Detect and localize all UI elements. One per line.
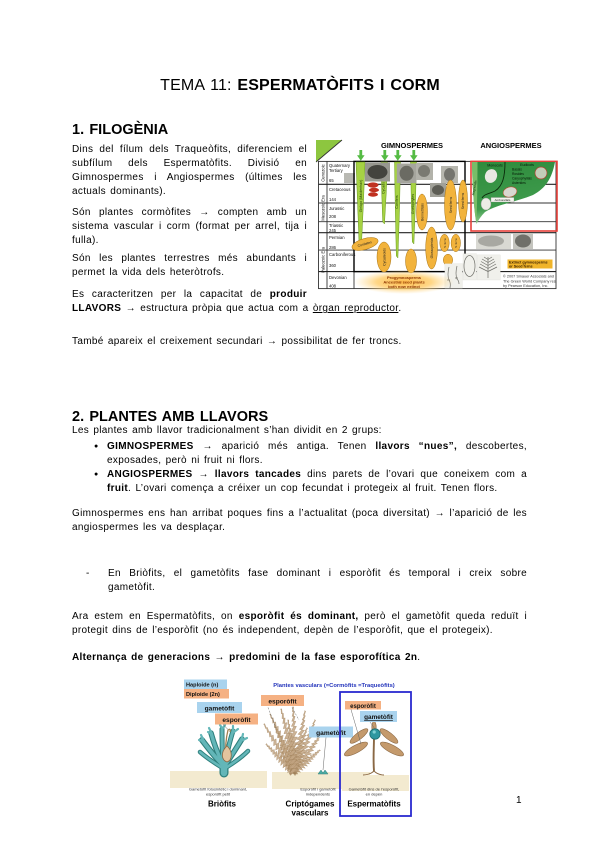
svg-text:Asterides: Asterides	[512, 181, 526, 185]
svg-text:Bennettitals: Bennettitals	[420, 203, 424, 221]
svg-text:esporòfit: esporòfit	[350, 704, 376, 710]
svg-text:Glossopterids: Glossopterids	[430, 237, 434, 258]
svg-text:Cycadeoids: Cycadeoids	[382, 248, 386, 266]
svg-text:Ginkgo (Maidenhair): Ginkgo (Maidenhair)	[359, 180, 363, 213]
svg-text:144: 144	[329, 197, 337, 202]
svg-text:The Green World Company res.: The Green World Company res.	[503, 279, 557, 283]
svg-text:gametòfit: gametòfit	[316, 730, 346, 737]
svg-text:esporòfit: esporòfit	[268, 699, 297, 706]
svg-text:Cycads: Cycads	[382, 182, 386, 194]
svg-text:vasculars: vasculars	[292, 809, 329, 818]
svg-text:by Pearson Education, Inc.: by Pearson Education, Inc.	[503, 284, 548, 288]
svg-text:© 2007 Sinauer Associats and: © 2007 Sinauer Associats and	[503, 275, 554, 279]
svg-text:gametòfit: gametòfit	[364, 714, 394, 721]
svg-text:208: 208	[329, 214, 337, 219]
svg-text:Rosides: Rosides	[512, 172, 524, 176]
svg-text:Devonian: Devonian	[329, 275, 347, 280]
svg-text:Permian: Permian	[329, 235, 345, 240]
svg-text:Monocots: Monocots	[487, 164, 503, 168]
svg-text:Paleozoic Era: Paleozoic Era	[321, 246, 326, 273]
svg-text:245: 245	[329, 228, 337, 233]
svg-text:360: 360	[329, 263, 337, 268]
svg-text:S. ferns: S. ferns	[454, 238, 458, 248]
svg-text:Seed ferns: Seed ferns	[449, 196, 453, 213]
svg-text:65: 65	[329, 178, 334, 183]
svg-text:Mesozoic Era: Mesozoic Era	[321, 195, 326, 221]
svg-text:Espermatòfits: Espermatòfits	[347, 800, 401, 809]
svg-text:Amborellals: Amborellals	[495, 198, 511, 202]
svg-text:esporòfit petit: esporòfit petit	[206, 792, 231, 797]
svg-text:independents: independents	[306, 792, 330, 797]
svg-text:GIMNOSPERMES: GIMNOSPERMES	[381, 141, 443, 150]
svg-text:Cretaceous: Cretaceous	[329, 187, 350, 192]
svg-text:408: 408	[329, 284, 337, 289]
svg-text:Caryophyllals: Caryophyllals	[512, 177, 532, 181]
svg-text:ANGIOSPERMES: ANGIOSPERMES	[480, 141, 541, 150]
svg-text:Gnetophytes: Gnetophytes	[411, 194, 415, 215]
svg-text:S. ferns: S. ferns	[443, 238, 447, 248]
svg-text:286: 286	[329, 245, 337, 250]
svg-text:Criptógames: Criptógames	[286, 800, 335, 809]
svg-text:Haploide (n): Haploide (n)	[186, 683, 218, 689]
svg-text:Carboniferous: Carboniferous	[329, 252, 355, 257]
svg-text:Eudicots: Eudicots	[520, 163, 534, 167]
svg-text:Jurassic: Jurassic	[329, 206, 344, 211]
svg-text:Basals: Basals	[512, 168, 522, 172]
svg-text:or Seed ferns: or Seed ferns	[509, 265, 533, 269]
svg-text:Seed ferns: Seed ferns	[461, 192, 465, 209]
svg-text:gametòfit: gametòfit	[205, 706, 235, 713]
svg-text:Conifers: Conifers	[395, 195, 399, 209]
svg-text:Diploide (2n): Diploide (2n)	[186, 692, 220, 698]
svg-text:Briòfits: Briòfits	[208, 800, 237, 809]
svg-text:en depèn: en depèn	[366, 792, 383, 797]
svg-text:Cenozoic: Cenozoic	[321, 164, 326, 181]
svg-text:esporòfit: esporòfit	[222, 717, 251, 724]
svg-text:Tertiary: Tertiary	[329, 168, 344, 173]
svg-text:both now extinct: both now extinct	[388, 284, 420, 289]
svg-text:Plantes vasculars (=Cormòfits: Plantes vasculars (=Cormòfits =Traqueòfi…	[273, 683, 395, 689]
